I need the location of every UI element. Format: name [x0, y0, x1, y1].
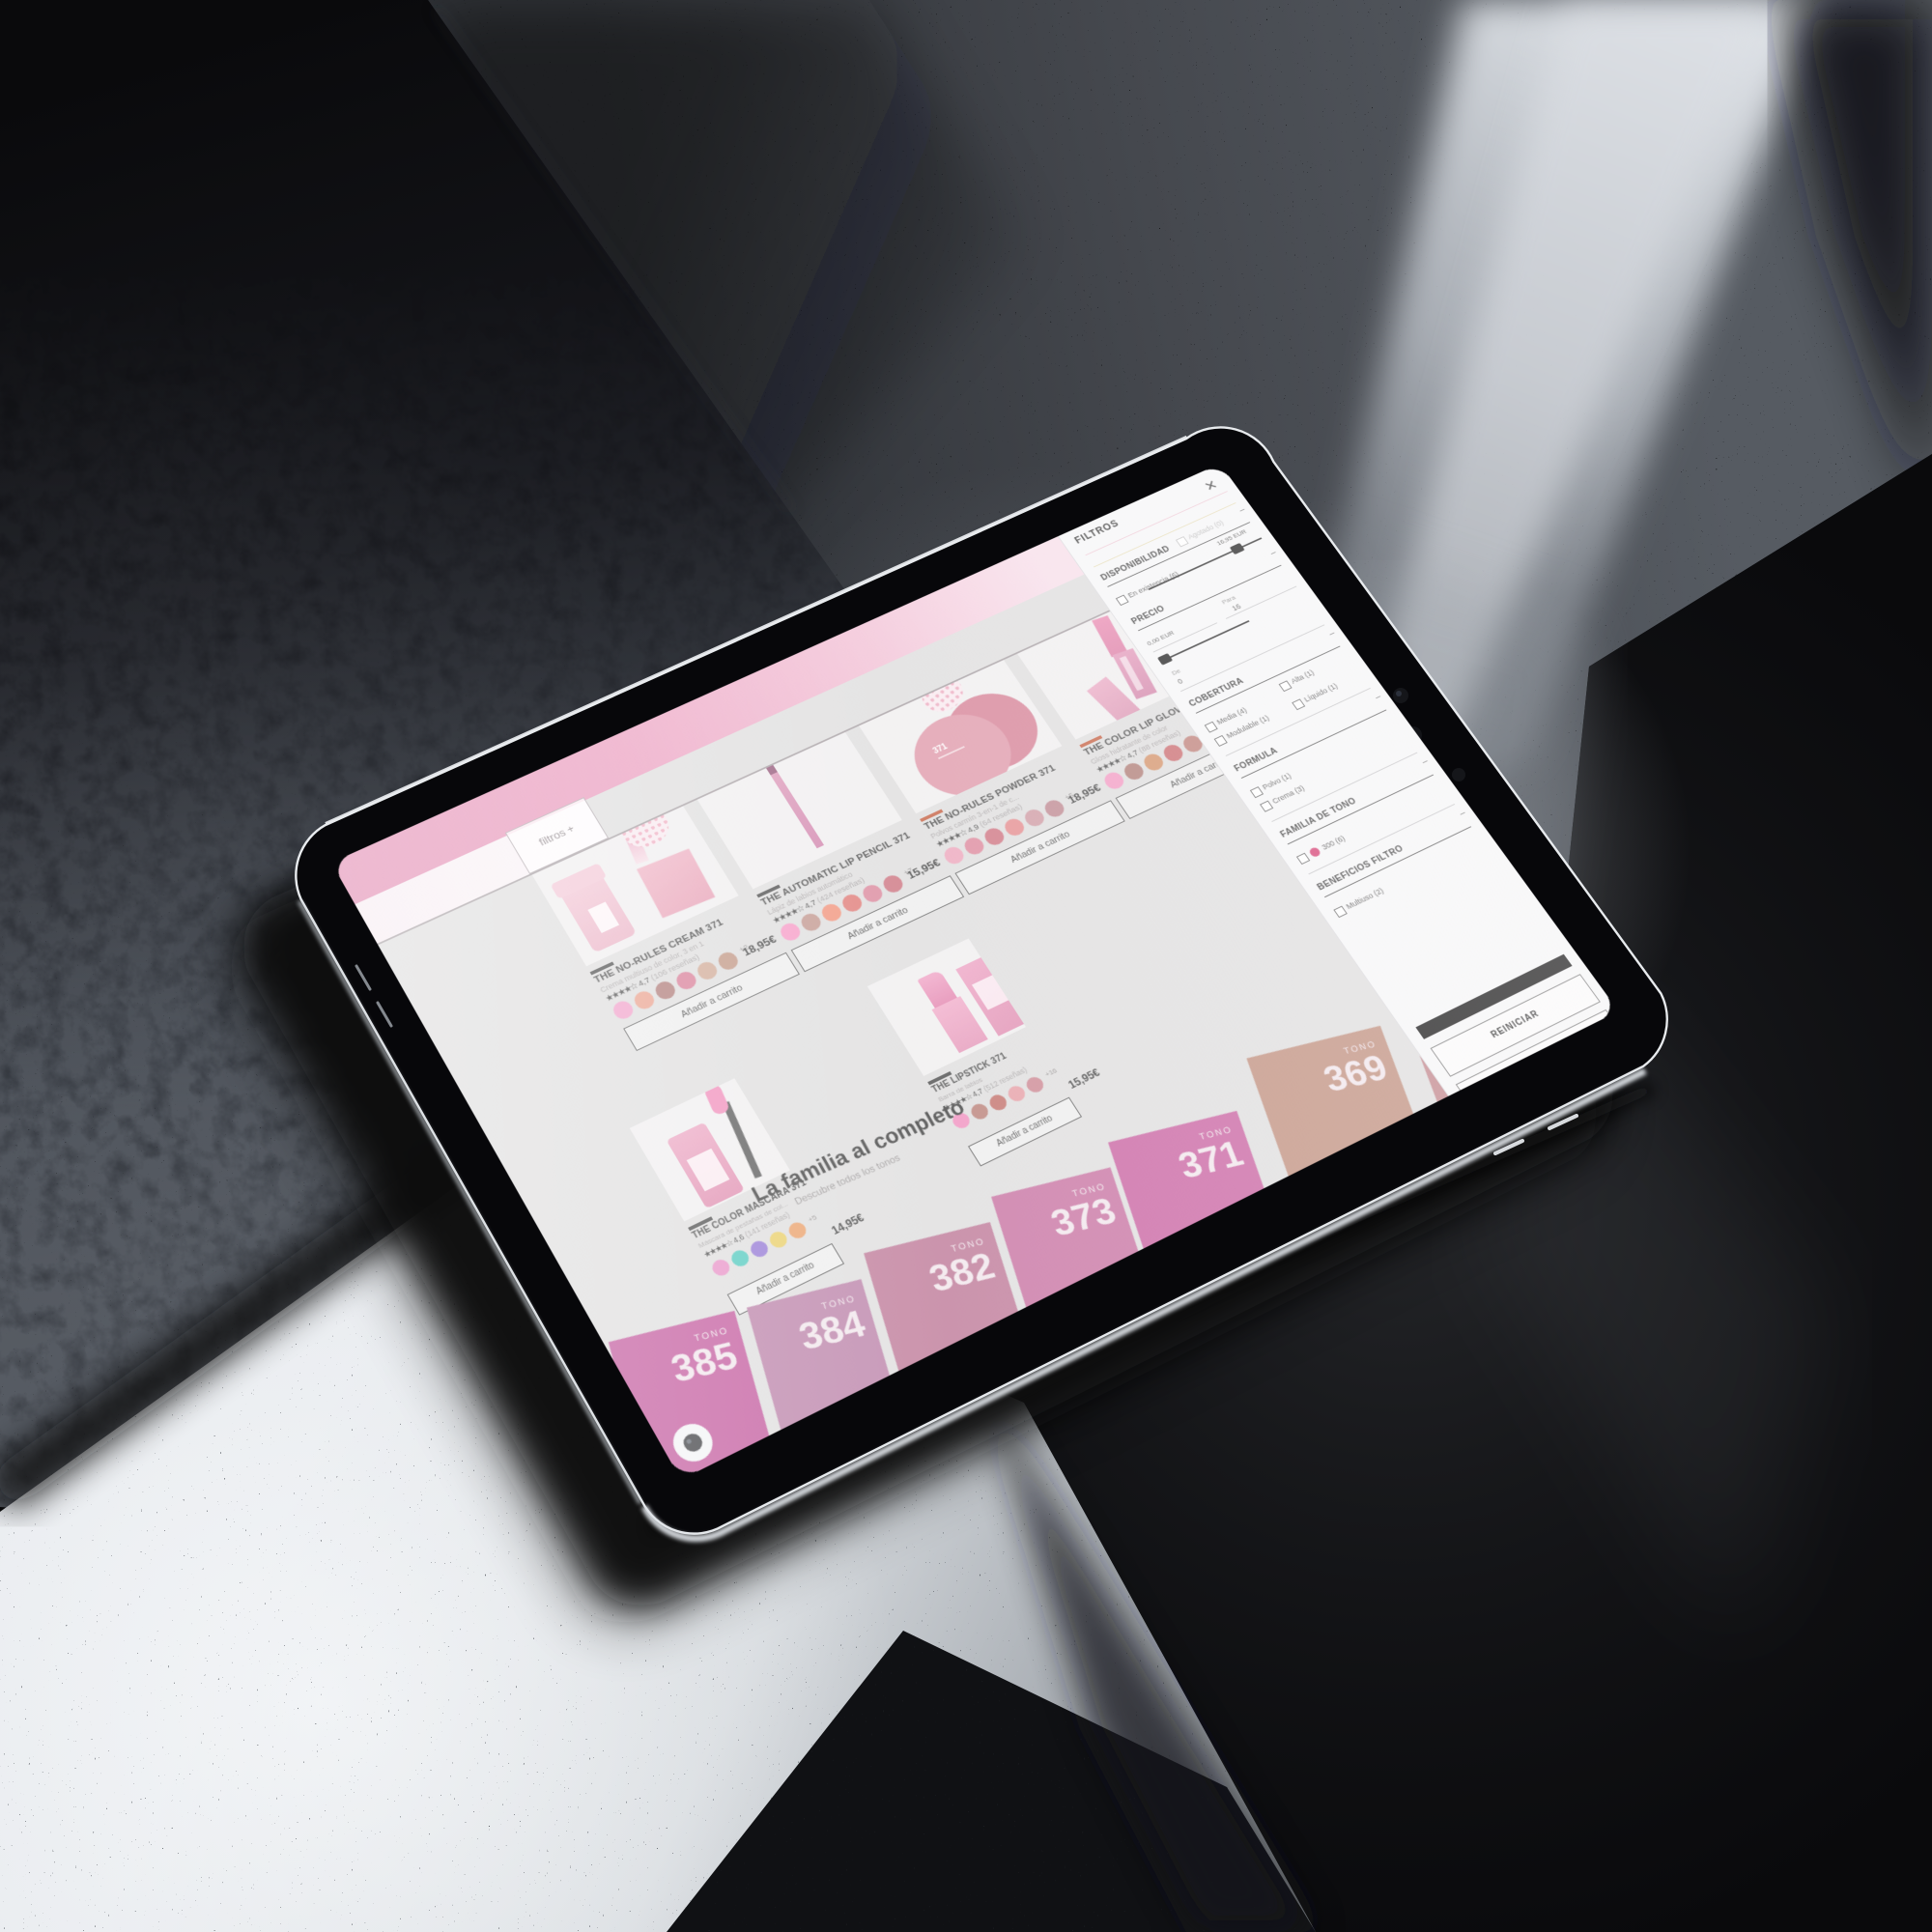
- svg-text:La familia al completo: La familia al completo: [748, 1096, 968, 1207]
